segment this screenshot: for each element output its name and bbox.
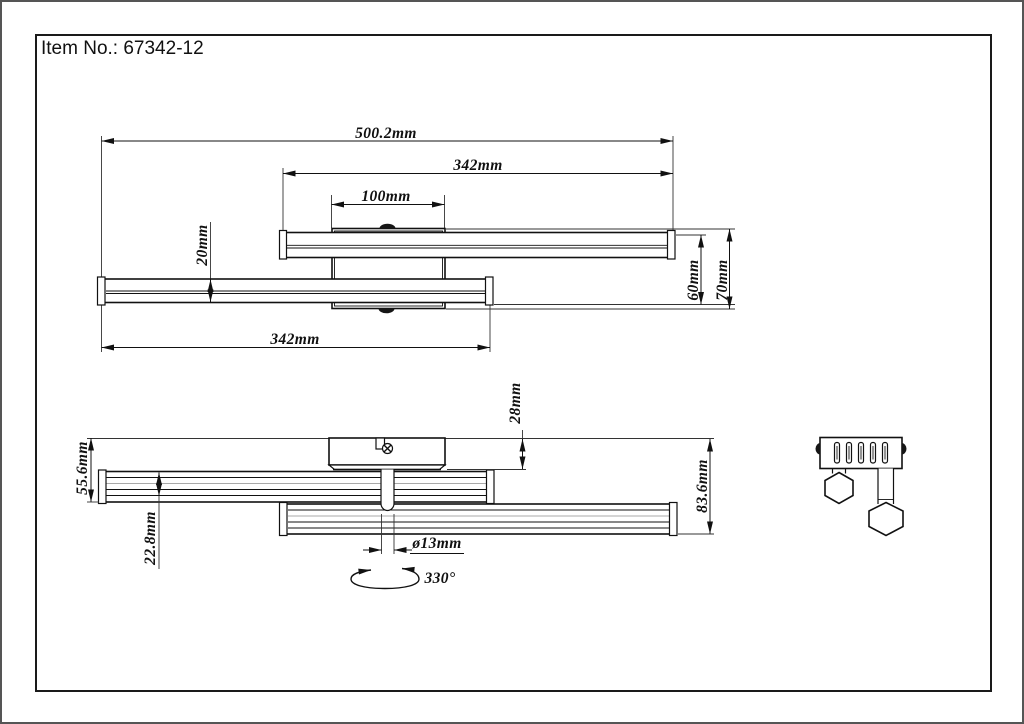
dim-upper-bar-length: 342mm [453,157,502,175]
rotation-arrow-icon [351,569,419,589]
technical-drawing [2,2,1024,724]
dim-total-width: 500.2mm [355,125,417,143]
canopy-side [329,438,445,470]
swivel-knob-bottom-icon [379,309,395,314]
dim-rotation-angle: 330° [424,570,455,588]
side-tab-right-icon [902,443,907,455]
lower-bar-right-endcap [486,277,494,305]
dim-stem-diameter: ø13mm [412,535,461,553]
dim-lower-bar-length: 342mm [270,331,319,349]
dim-overall-height: 83.6mm [694,459,712,513]
screw-icon [383,444,393,454]
lower-bar-left-endcap [98,277,106,305]
end-view [816,438,907,536]
side-tab-left-icon [816,443,821,455]
dim-height-to-upper-bar: 55.6mm [74,441,92,495]
dim-bar-height: 22.8mm [142,511,160,565]
dim-bar-depth: 20mm [194,224,212,265]
side-view [87,430,714,589]
upper-bar-top [280,231,676,260]
lower-bar-top [98,277,494,305]
drawing-page: Item No.: 67342-12 [0,0,1024,724]
dim-bars-span-depth: 60mm [685,259,703,300]
dim-canopy-height: 28mm [507,382,525,423]
upper-bar-right-endcap [668,231,676,260]
lower-bar-hex-end [869,469,903,536]
lower-bar-side [280,503,678,536]
upper-bar-hex-end [825,469,853,504]
dim-overall-depth: 70mm [714,259,732,300]
swivel-knob-top-icon [380,224,396,229]
upper-bar-side [99,470,495,504]
stem-side [381,470,394,511]
upper-bar-left-endcap [280,231,287,260]
dim-canopy-width: 100mm [361,188,410,206]
